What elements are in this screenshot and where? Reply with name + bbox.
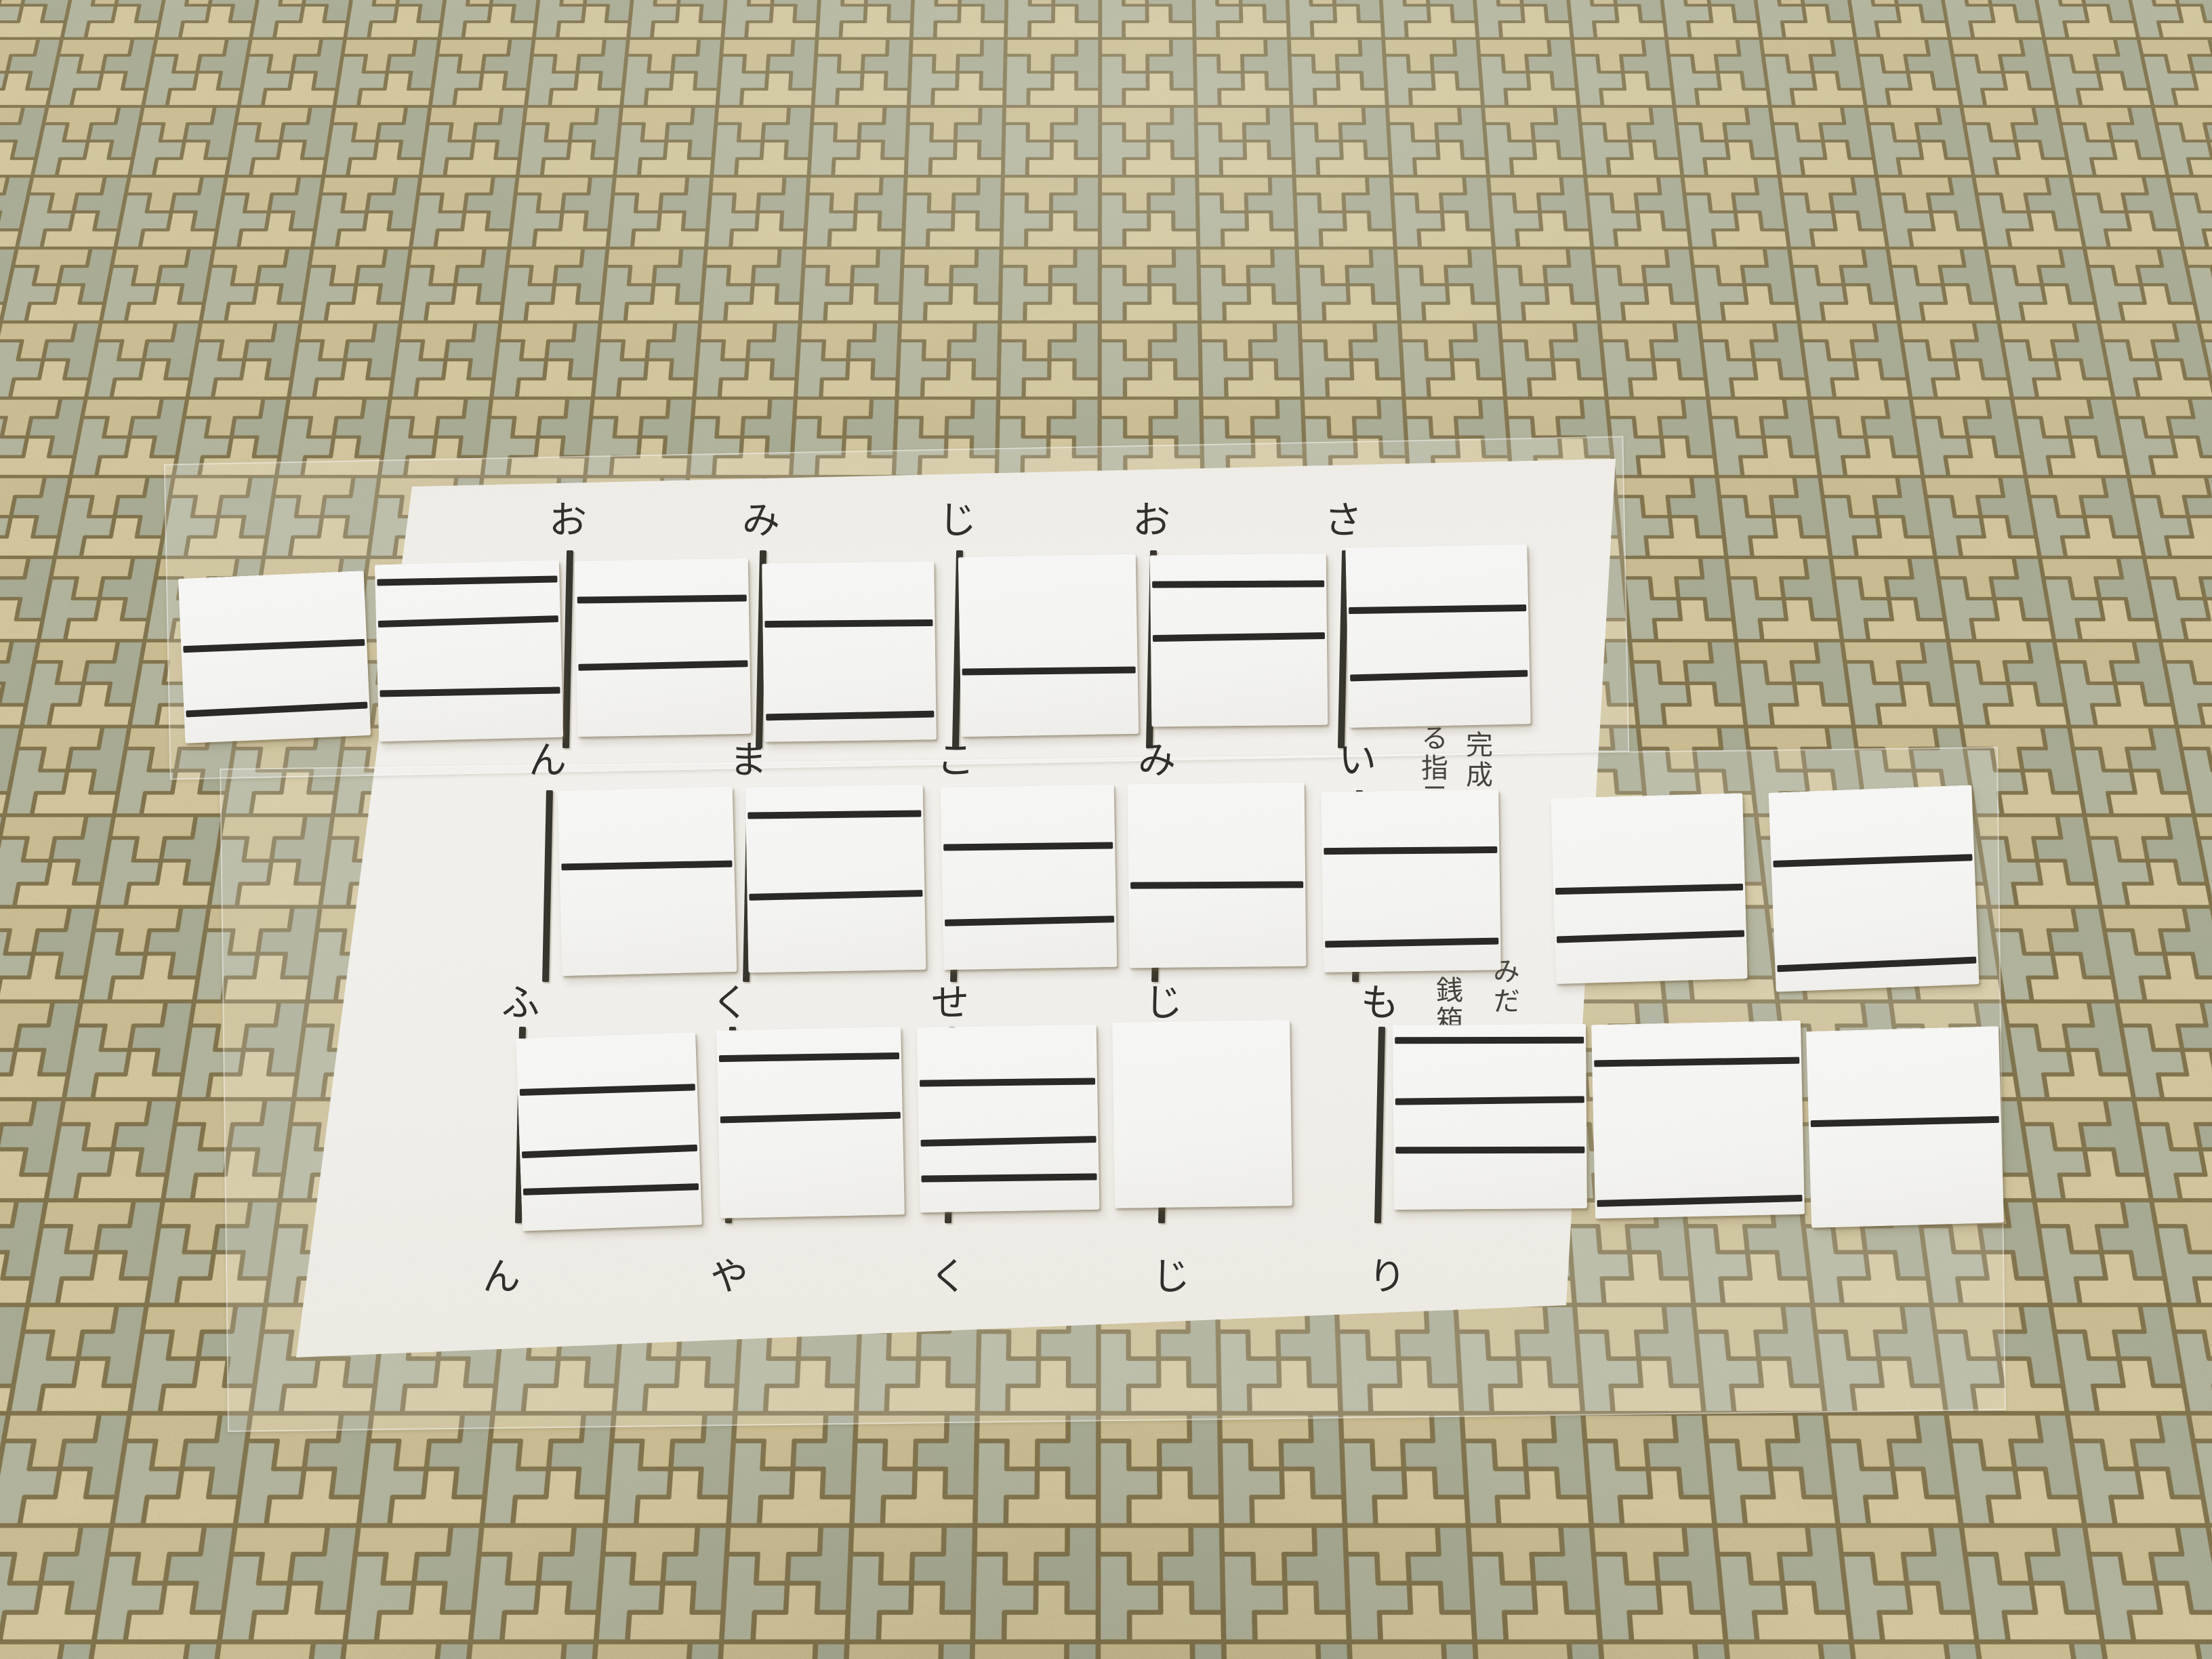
kana-label: こ	[933, 741, 979, 781]
card-line	[943, 842, 1113, 851]
word-card	[375, 560, 563, 742]
vertical-instruction-text: 完成	[1461, 731, 1492, 790]
card-line	[378, 615, 558, 628]
card-line	[377, 575, 557, 586]
column-divider-bar	[1374, 1027, 1385, 1223]
word-card	[1551, 793, 1748, 984]
card-line	[945, 916, 1114, 926]
card-line	[749, 890, 922, 901]
word-card	[1112, 1020, 1292, 1208]
card-line	[1594, 1057, 1799, 1067]
kana-label: ん	[525, 741, 571, 781]
card-line	[1350, 670, 1528, 682]
kana-label: み	[738, 501, 784, 541]
card-line	[921, 1173, 1097, 1182]
word-card	[716, 1027, 905, 1218]
card-line	[1325, 937, 1498, 947]
word-card	[917, 1025, 1100, 1213]
card-line	[747, 810, 921, 819]
card-line	[719, 1052, 899, 1062]
word-card	[575, 558, 751, 737]
word-card	[1128, 783, 1307, 968]
card-line	[1555, 883, 1743, 894]
card-line	[1324, 846, 1497, 855]
card-line	[720, 1111, 901, 1123]
word-card	[1806, 1026, 2004, 1228]
card-line	[962, 666, 1136, 675]
card-line	[1557, 930, 1744, 943]
card-line	[1152, 580, 1324, 588]
word-card	[941, 785, 1118, 970]
kana-label: く	[708, 984, 754, 1023]
card-line	[1597, 1195, 1802, 1207]
card-line	[766, 711, 934, 721]
word-card	[1591, 1021, 1805, 1218]
worksheet-content: おみじおさんまこみいふくせじもんやくじりる指示完成銭箱をみだ	[0, 0, 2212, 1659]
word-card	[1321, 790, 1501, 972]
kana-label: り	[1364, 1258, 1410, 1297]
kana-label: じ	[1148, 1258, 1194, 1297]
card-line	[186, 702, 367, 718]
word-card	[178, 571, 371, 743]
kana-label: さ	[1320, 501, 1366, 541]
card-line	[380, 687, 560, 697]
column-divider-bar	[542, 790, 553, 982]
kana-label: じ	[1141, 984, 1187, 1023]
card-line	[183, 639, 365, 653]
card-line	[577, 594, 747, 603]
kana-label: も	[1357, 984, 1403, 1023]
kana-label: お	[545, 501, 591, 541]
card-line	[522, 1145, 697, 1158]
word-card	[1393, 1024, 1587, 1210]
kana-label: ふ	[497, 984, 544, 1023]
card-line	[1773, 855, 1972, 868]
card-line	[1777, 956, 1976, 972]
word-card	[516, 1032, 702, 1231]
word-card	[762, 561, 937, 742]
card-line	[1130, 881, 1303, 888]
card-line	[920, 1136, 1096, 1147]
kana-label: せ	[927, 984, 973, 1023]
kana-label: お	[1128, 501, 1174, 541]
card-line	[523, 1183, 699, 1195]
word-card	[958, 554, 1139, 737]
word-card	[745, 785, 926, 973]
card-line	[920, 1078, 1095, 1086]
word-card	[558, 787, 737, 976]
word-card	[1345, 544, 1530, 728]
column-divider-bar	[562, 550, 573, 748]
kana-label: や	[706, 1258, 752, 1297]
kana-label: み	[1134, 741, 1180, 781]
card-line	[561, 860, 732, 870]
kana-label: い	[1334, 741, 1380, 781]
kana-label: く	[926, 1258, 972, 1297]
kana-label: ま	[725, 741, 771, 781]
photo-scene: おみじおさんまこみいふくせじもんやくじりる指示完成銭箱をみだ	[0, 0, 2212, 1659]
kana-label: じ	[935, 501, 981, 541]
card-line	[1395, 1096, 1584, 1105]
card-line	[578, 660, 747, 671]
word-card	[1150, 554, 1328, 727]
word-card	[1768, 785, 1979, 991]
card-line	[1395, 1036, 1584, 1043]
kana-label: ん	[478, 1258, 525, 1297]
card-line	[1395, 1147, 1584, 1153]
card-line	[520, 1084, 695, 1096]
card-line	[1811, 1116, 1999, 1127]
card-line	[1153, 632, 1325, 642]
card-line	[1349, 605, 1526, 614]
card-line	[764, 619, 933, 628]
